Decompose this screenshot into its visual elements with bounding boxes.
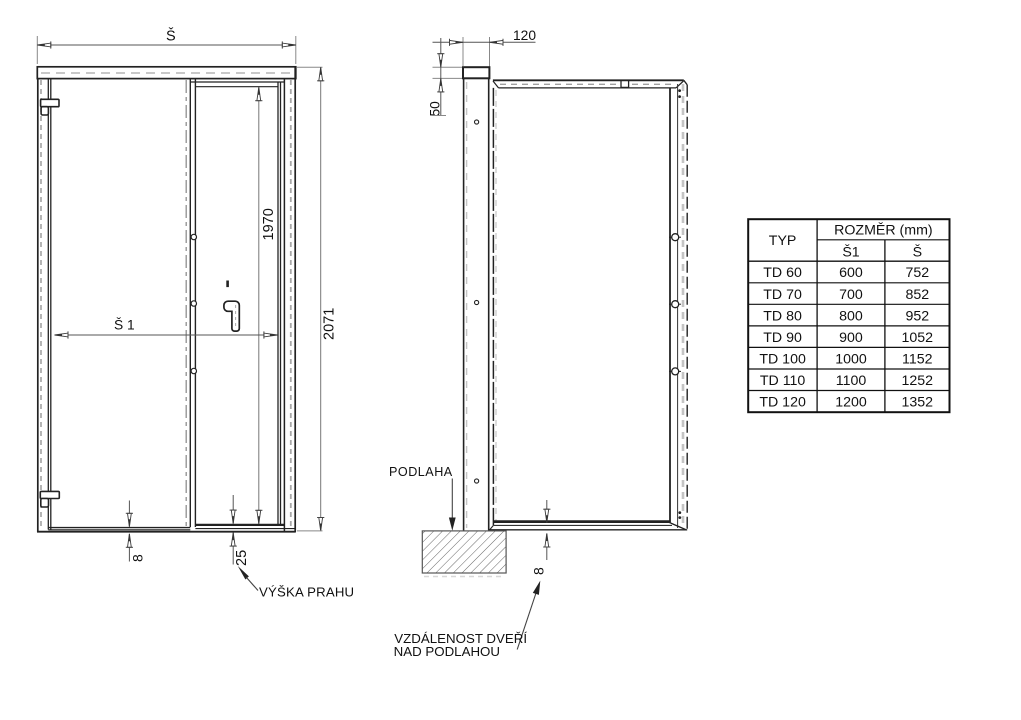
svg-text:VÝŠKA PRAHU: VÝŠKA PRAHU [259,585,354,600]
svg-text:Š: Š [166,28,176,45]
svg-text:TD 70: TD 70 [763,287,802,303]
svg-text:TD 90: TD 90 [763,330,802,346]
svg-text:120: 120 [513,28,536,43]
svg-text:900: 900 [839,330,863,346]
svg-text:1000: 1000 [835,351,867,367]
svg-text:1200: 1200 [835,395,867,411]
svg-text:1970: 1970 [261,208,277,240]
svg-text:TD 120: TD 120 [759,395,806,411]
svg-text:952: 952 [905,308,929,324]
svg-text:TD 80: TD 80 [763,308,802,324]
svg-text:1100: 1100 [836,373,867,389]
svg-text:1052: 1052 [902,330,934,346]
svg-text:700: 700 [839,287,863,303]
svg-text:800: 800 [839,308,863,324]
svg-text:25: 25 [234,550,250,566]
svg-text:TYP: TYP [769,233,797,249]
svg-text:852: 852 [905,287,929,303]
svg-text:NAD PODLAHOU: NAD PODLAHOU [394,644,500,659]
svg-text:1352: 1352 [902,395,934,411]
svg-text:8: 8 [129,554,145,562]
svg-text:TD 110: TD 110 [760,373,806,389]
svg-text:752: 752 [905,265,929,281]
svg-text:2071: 2071 [322,308,338,340]
svg-text:TD 100: TD 100 [759,351,806,367]
svg-text:50: 50 [428,101,443,117]
svg-text:1152: 1152 [902,351,933,367]
svg-text:TD 60: TD 60 [763,265,802,281]
svg-text:PODLAHA: PODLAHA [389,465,453,479]
svg-text:Š 1: Š 1 [114,317,135,333]
svg-text:Š1: Š1 [842,243,859,260]
svg-text:Š: Š [913,243,922,260]
svg-text:8: 8 [531,567,547,575]
svg-text:600: 600 [839,265,863,281]
svg-text:1252: 1252 [902,373,934,389]
svg-text:ROZMĚR (mm): ROZMĚR (mm) [834,221,933,238]
